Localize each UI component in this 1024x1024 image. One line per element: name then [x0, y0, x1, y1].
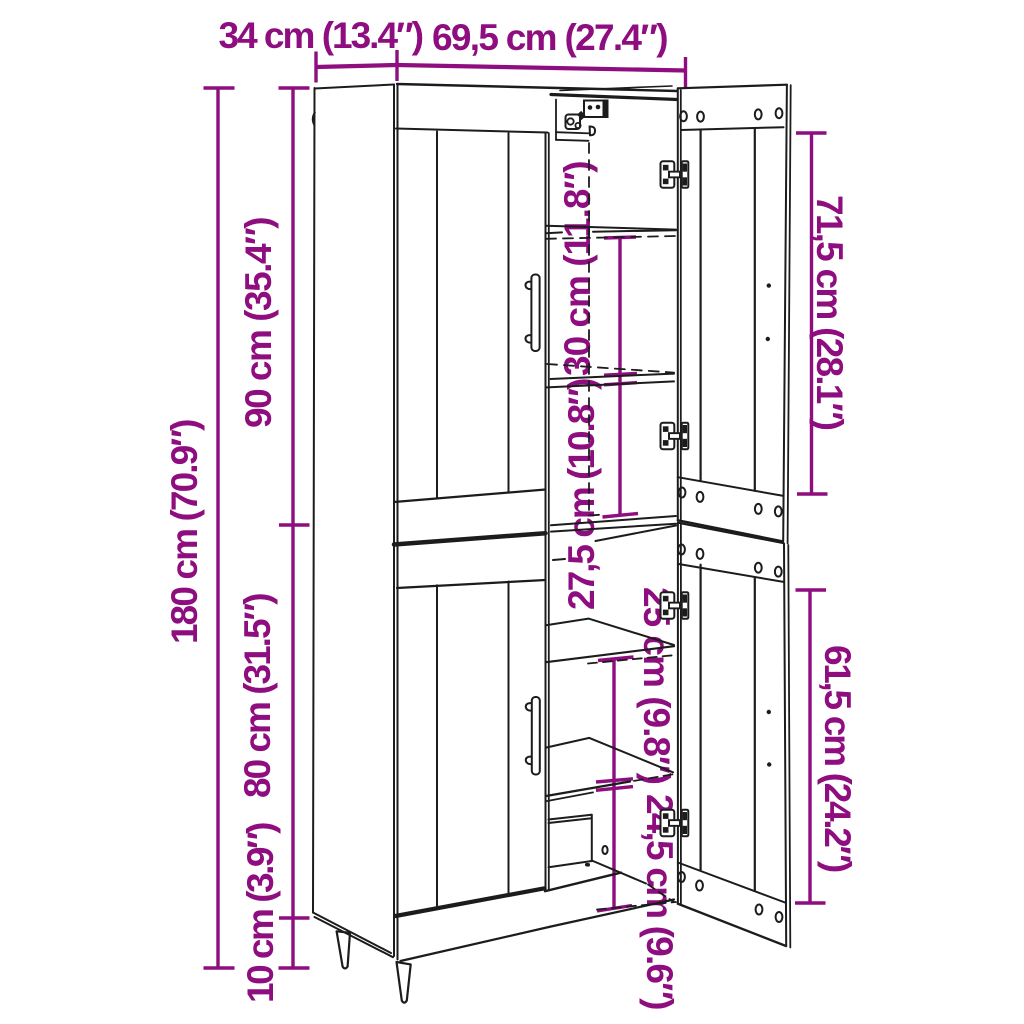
svg-text:27,5 cm (10.8″): 27,5 cm (10.8″): [561, 379, 602, 610]
svg-text:69,5 cm (27.4″): 69,5 cm (27.4″): [432, 17, 667, 58]
svg-text:34 cm (13.4″): 34 cm (13.4″): [219, 15, 423, 56]
svg-text:90 cm (35.4″): 90 cm (35.4″): [238, 218, 279, 428]
svg-text:61,5 cm (24.2″): 61,5 cm (24.2″): [817, 645, 858, 872]
svg-text:30 cm (11.8″): 30 cm (11.8″): [557, 161, 598, 376]
svg-text:80 cm (31.5″): 80 cm (31.5″): [237, 594, 278, 798]
svg-text:10 cm (3.9″): 10 cm (3.9″): [240, 823, 281, 1003]
svg-text:180 cm (70.9″): 180 cm (70.9″): [164, 420, 205, 644]
svg-text:71,5 cm (28.1″): 71,5 cm (28.1″): [809, 195, 850, 430]
